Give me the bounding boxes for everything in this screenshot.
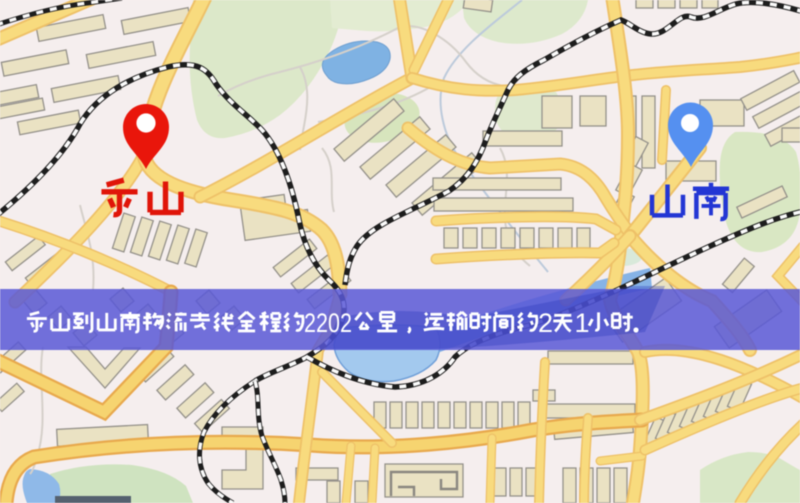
svg-text:1: 1: [575, 308, 590, 338]
svg-text:2: 2: [538, 308, 553, 338]
svg-text:2202: 2202: [304, 308, 352, 338]
